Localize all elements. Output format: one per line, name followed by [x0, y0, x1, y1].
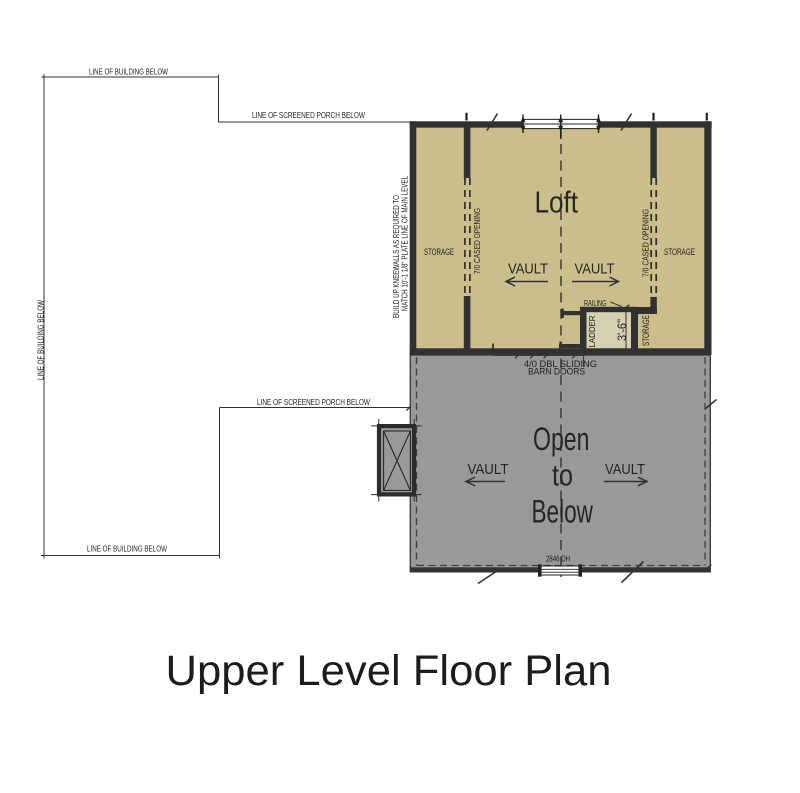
svg-text:LINE OF BUILDING BELOW: LINE OF BUILDING BELOW: [87, 543, 167, 553]
svg-text:Upper Level Floor Plan: Upper Level Floor Plan: [166, 648, 612, 695]
svg-text:Below: Below: [532, 494, 594, 530]
svg-text:to: to: [552, 458, 573, 493]
svg-text:BARN DOORS: BARN DOORS: [528, 367, 585, 377]
svg-text:LINE OF BUILDING BELOW: LINE OF BUILDING BELOW: [36, 300, 46, 380]
svg-text:7/0 CASED OPENING: 7/0 CASED OPENING: [472, 208, 482, 274]
svg-text:LINE OF SCREENED PORCH BELOW: LINE OF SCREENED PORCH BELOW: [257, 397, 370, 407]
svg-text:MATCH 10'-1 1/8" PLATE LINE OF: MATCH 10'-1 1/8" PLATE LINE OF MAIN LEVE…: [399, 176, 409, 311]
svg-text:LINE OF BUILDING BELOW: LINE OF BUILDING BELOW: [89, 67, 168, 77]
svg-text:Loft: Loft: [535, 186, 579, 220]
svg-text:STORAGE: STORAGE: [664, 247, 695, 257]
svg-text:VAULT: VAULT: [508, 261, 548, 278]
svg-text:VAULT: VAULT: [468, 461, 509, 478]
svg-text:LINE OF SCREENED PORCH BELOW: LINE OF SCREENED PORCH BELOW: [252, 110, 365, 120]
svg-text:RAILING: RAILING: [584, 299, 607, 308]
svg-text:VAULT: VAULT: [575, 261, 615, 278]
svg-text:3'-6": 3'-6": [617, 319, 629, 341]
svg-text:Open: Open: [533, 421, 590, 457]
svg-text:7/0 CASED OPENING: 7/0 CASED OPENING: [641, 209, 651, 277]
svg-text:VAULT: VAULT: [605, 461, 645, 478]
svg-text:2846 DH: 2846 DH: [546, 555, 570, 564]
svg-text:LADDER: LADDER: [587, 316, 597, 348]
svg-text:STORAGE: STORAGE: [424, 247, 454, 257]
svg-text:STORAGE: STORAGE: [641, 315, 651, 346]
